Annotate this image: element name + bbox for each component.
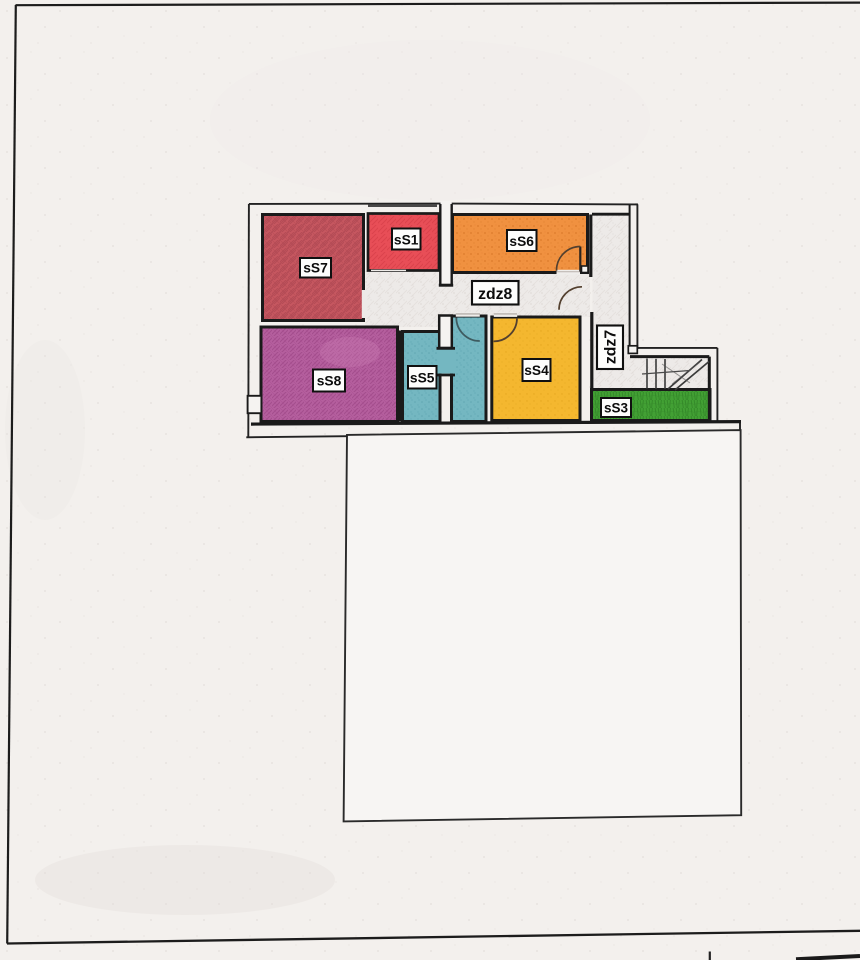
svg-text:sS7: sS7 — [303, 261, 328, 276]
svg-text:sS3: sS3 — [604, 401, 629, 416]
svg-text:sS6: sS6 — [509, 234, 534, 249]
svg-text:zdz7: zdz7 — [603, 330, 620, 364]
svg-text:zdz8: zdz8 — [478, 286, 512, 303]
svg-text:sS5: sS5 — [410, 371, 435, 386]
svg-text:sS4: sS4 — [524, 363, 549, 378]
svg-text:sS8: sS8 — [317, 374, 342, 389]
svg-text:sS1: sS1 — [394, 233, 419, 248]
